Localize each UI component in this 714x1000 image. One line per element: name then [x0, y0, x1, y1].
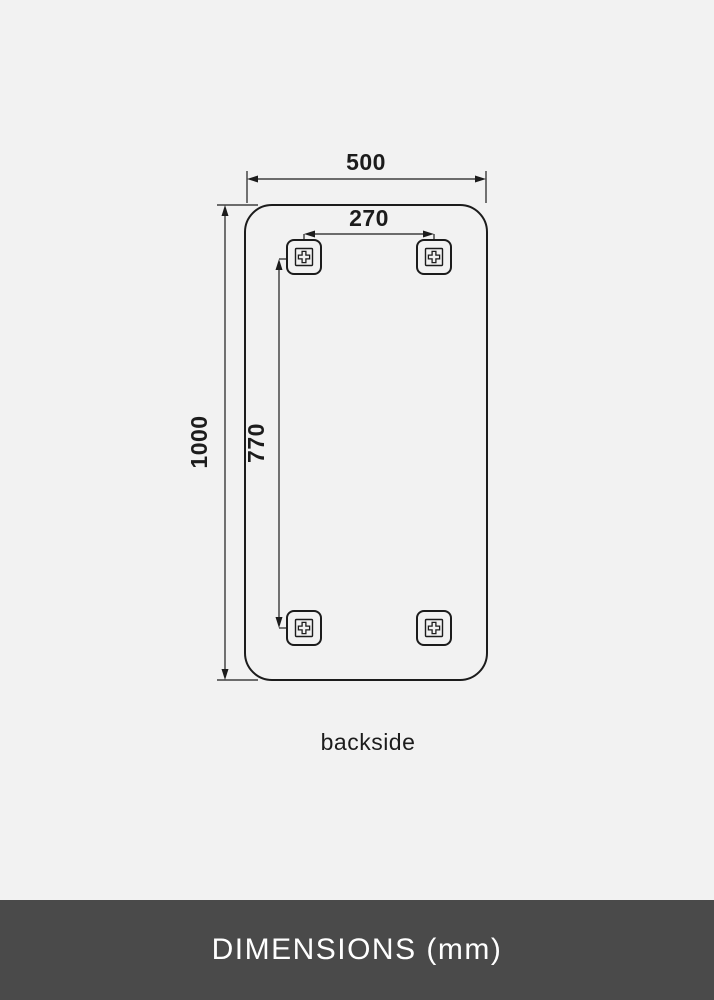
mounting-bracket-bottom-left	[287, 611, 321, 645]
dim-bracket-vertical-label: 770	[243, 423, 269, 463]
bracket-outer	[417, 611, 451, 645]
mirror-backside-drawing: 500 1000 270 770	[0, 0, 714, 900]
arrowhead-bottom	[222, 669, 229, 680]
screw-cross-icon	[298, 622, 309, 633]
dim-overall-width: 500	[247, 149, 486, 203]
bracket-outer	[417, 240, 451, 274]
screw-cross-icon	[298, 251, 309, 262]
dim-height-label: 1000	[186, 415, 212, 468]
footer-title: DIMENSIONS (mm)	[212, 933, 503, 967]
arrowhead-left	[304, 231, 315, 238]
mirror-outline	[245, 205, 487, 680]
arrowhead-right	[475, 176, 486, 183]
dim-bracket-spacing-vertical: 770	[243, 259, 287, 628]
arrowhead-left	[247, 176, 258, 183]
view-caption: backside	[321, 729, 416, 755]
dim-bracket-spacing-horizontal: 270	[304, 205, 434, 240]
mounting-bracket-top-right	[417, 240, 451, 274]
screw-cross-icon	[428, 251, 439, 262]
mounting-bracket-top-left	[287, 240, 321, 274]
screw-cross-icon	[428, 622, 439, 633]
product-dimension-sheet: 500 1000 270 770	[0, 0, 714, 1000]
arrowhead-top	[222, 205, 229, 216]
arrowhead-top	[276, 259, 283, 270]
dim-width-label: 500	[346, 149, 386, 175]
bracket-outer	[287, 240, 321, 274]
arrowhead-bottom	[276, 617, 283, 628]
arrowhead-right	[423, 231, 434, 238]
footer-bar: DIMENSIONS (mm)	[0, 900, 714, 1000]
mounting-bracket-bottom-right	[417, 611, 451, 645]
bracket-outer	[287, 611, 321, 645]
dim-bracket-horizontal-label: 270	[349, 205, 389, 231]
